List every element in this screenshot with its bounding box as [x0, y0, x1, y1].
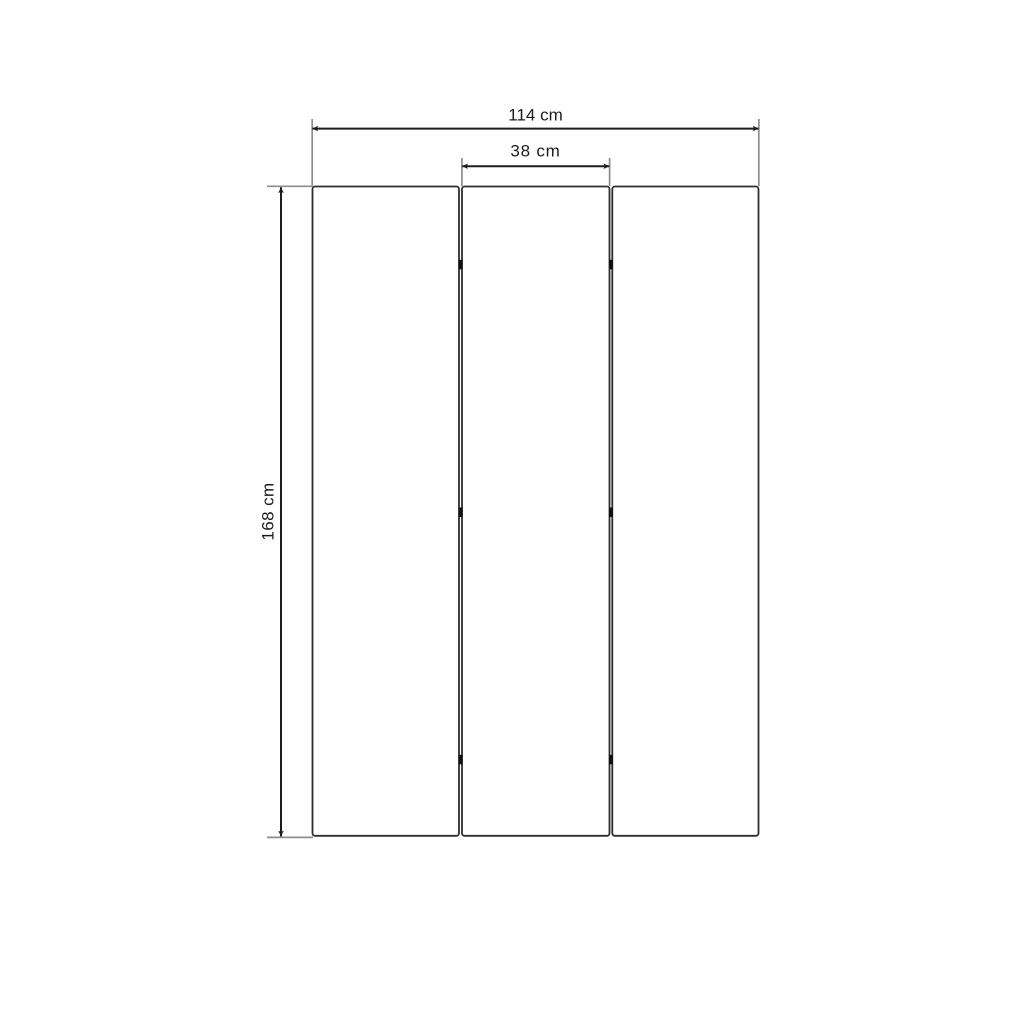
- svg-text:168 cm: 168 cm: [259, 482, 278, 540]
- svg-text:114 cm: 114 cm: [508, 106, 563, 125]
- svg-text:38 cm: 38 cm: [510, 142, 560, 161]
